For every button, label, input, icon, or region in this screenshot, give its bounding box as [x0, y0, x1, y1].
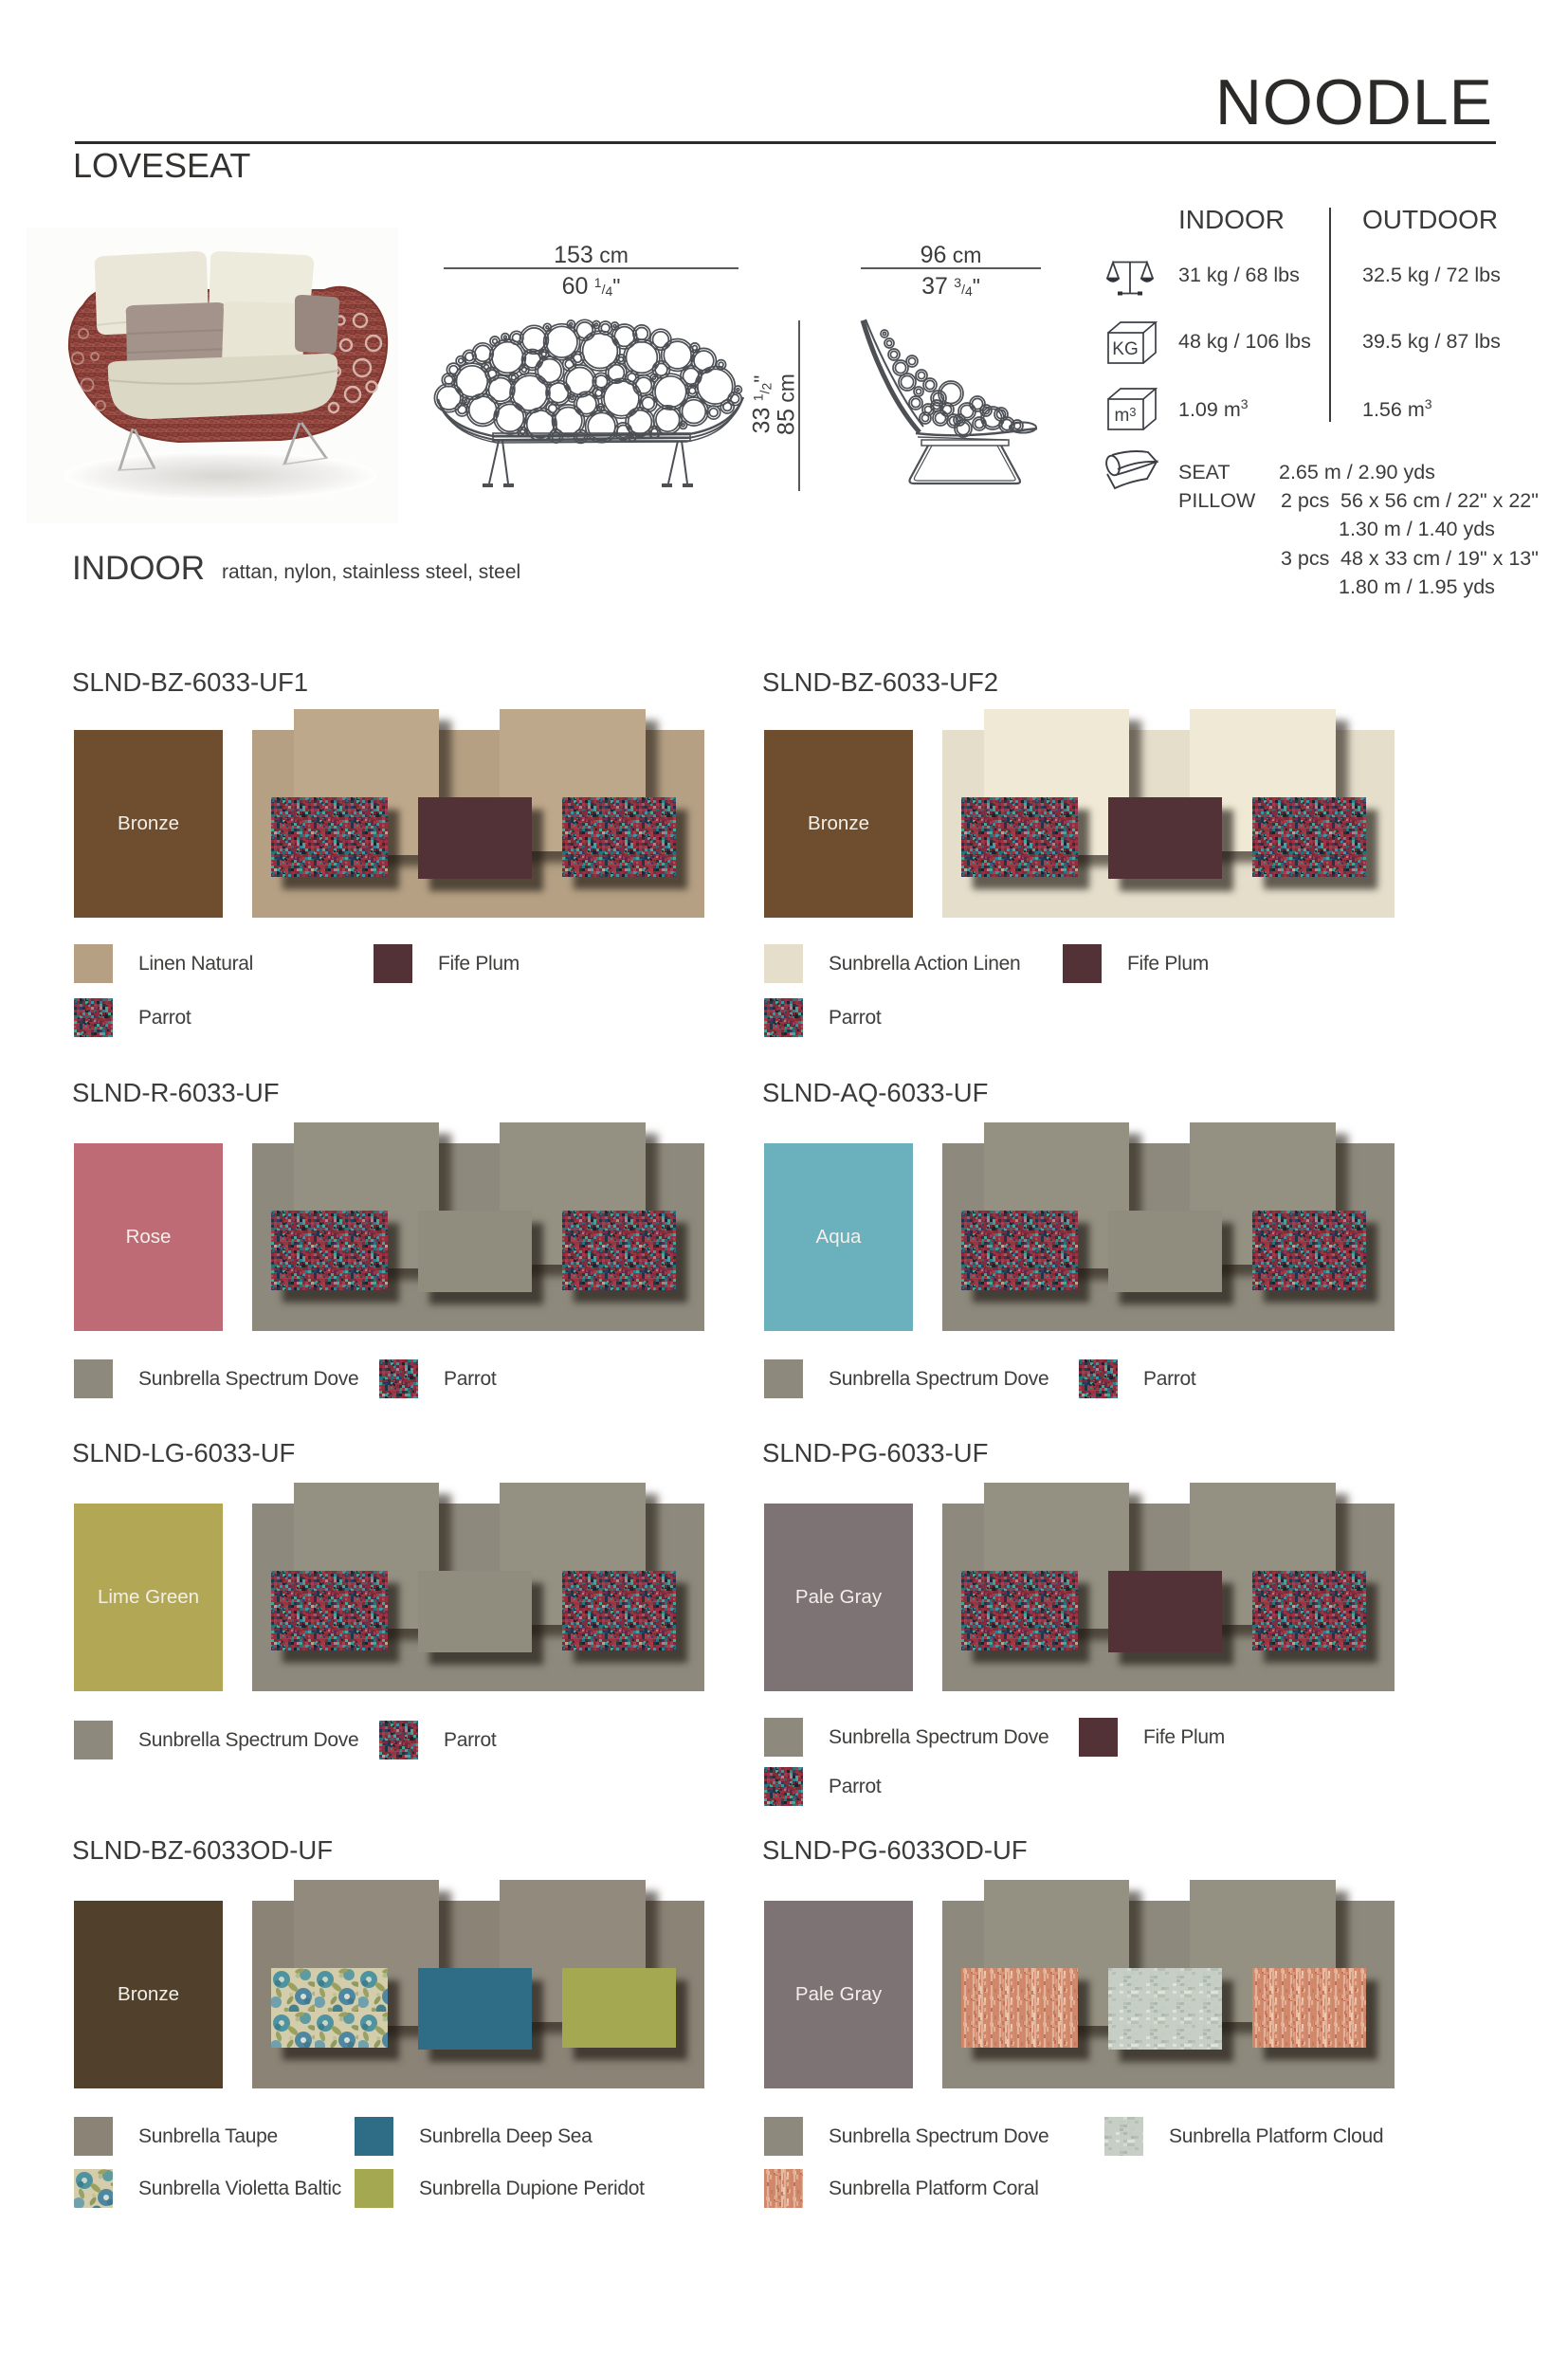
svg-text:m3: m3 — [1114, 405, 1136, 426]
svg-text:KG: KG — [1112, 339, 1138, 359]
